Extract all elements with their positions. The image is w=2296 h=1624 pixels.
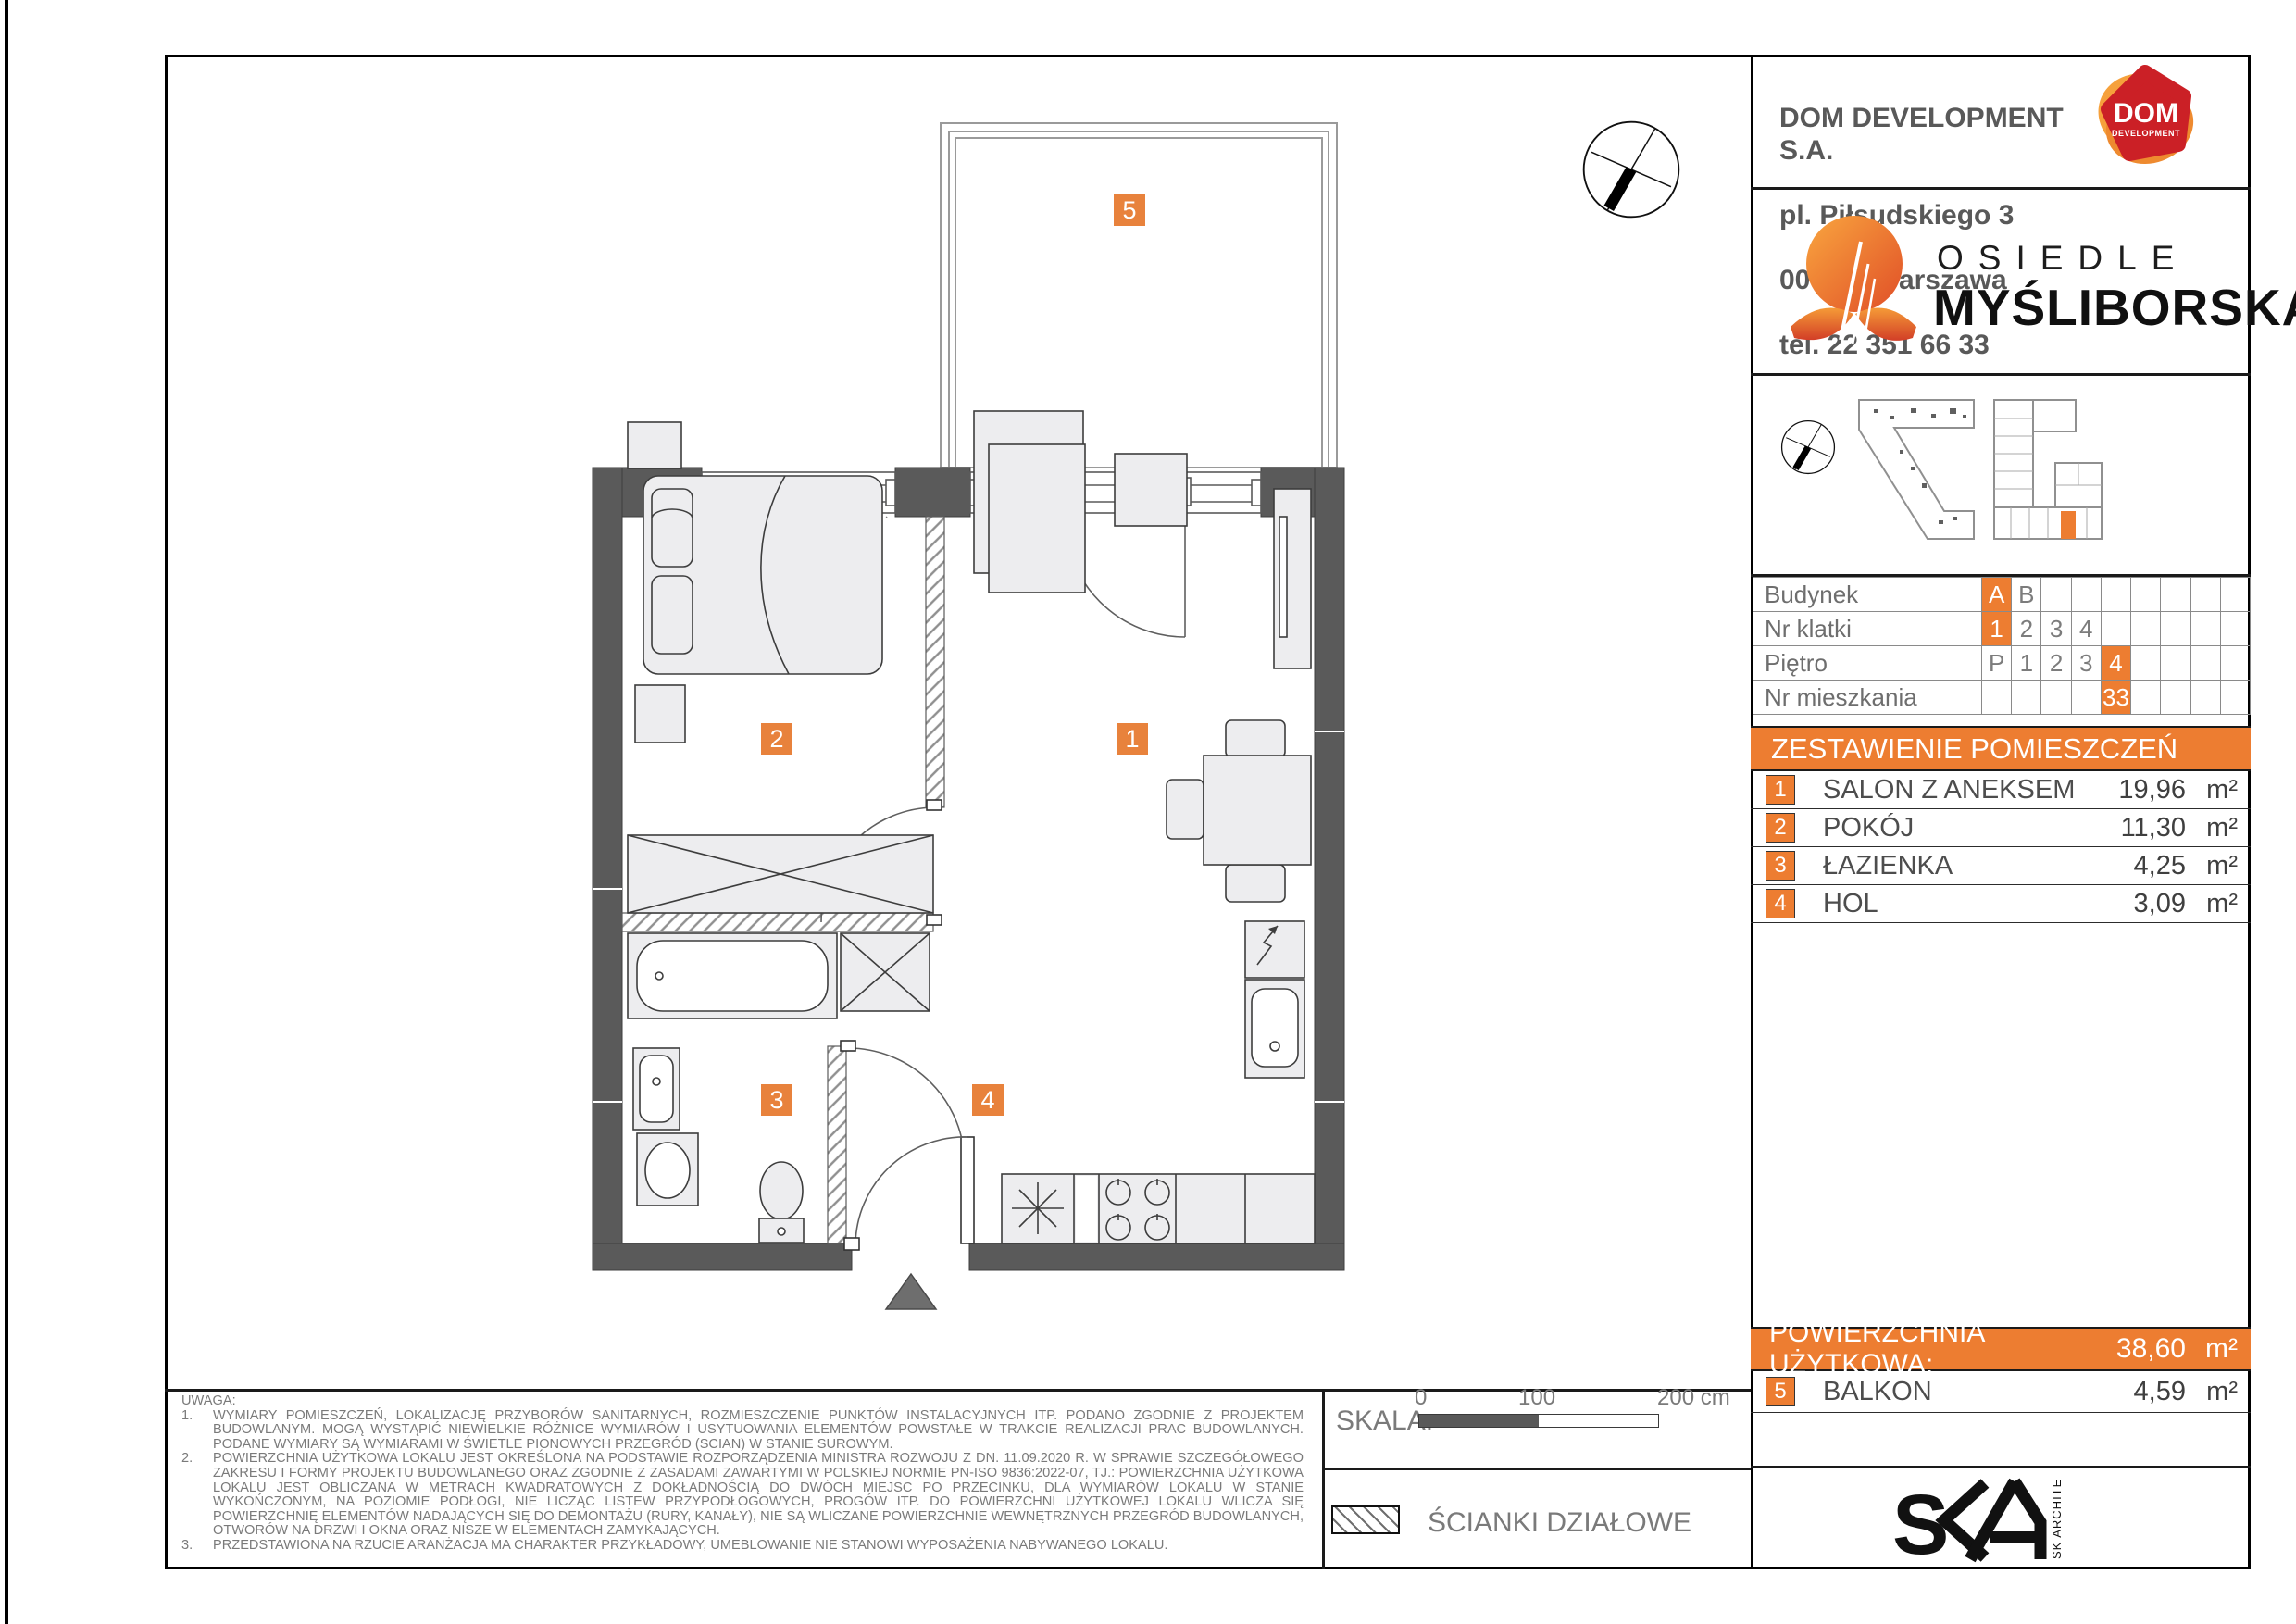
info-table-row-label: Budynek (1753, 578, 1982, 612)
rooms-rows: 1SALON Z ANEKSEM19,96m²2POKÓJ11,30m²3ŁAZ… (1751, 771, 2251, 923)
dining-set (1167, 720, 1311, 902)
room-label-lazienka: 3 (761, 1084, 792, 1116)
section-rule-2 (1751, 373, 2251, 376)
north-arrow-icon (1579, 118, 1683, 221)
page-edge-rule (5, 0, 8, 1624)
room-label-hol: 4 (972, 1084, 1004, 1116)
info-table-cell: P (1982, 646, 2012, 681)
info-table-cell (2221, 646, 2251, 681)
info-table-row-label: Nr mieszkania (1753, 681, 1982, 715)
entrance-arrow-icon (886, 1274, 936, 1309)
info-table-cell: 33 (2102, 681, 2131, 715)
scale-tick-100: 100 (1518, 1385, 1555, 1411)
info-table-cell (2221, 578, 2251, 612)
sofa (974, 411, 1085, 593)
info-table-cell (2072, 578, 2102, 612)
info-table-cell (2161, 578, 2190, 612)
section-rule-1 (1751, 187, 2251, 190)
rooms-header-label: ZESTAWIENIE POMIESZCZEŃ (1771, 732, 2177, 766)
washbasin (633, 1048, 680, 1130)
svg-text:DOM: DOM (2114, 98, 2178, 129)
washer-box (841, 933, 930, 1011)
note-item: 3.PRZEDSTAWIONA NA RZUCIE ARANŻACJA MA C… (181, 1539, 1304, 1554)
info-table-cell (2131, 681, 2161, 715)
bathroom-door (841, 1041, 965, 1165)
note-number: 3. (181, 1539, 213, 1554)
kitchen-sink (1245, 980, 1304, 1078)
notes-block: UWAGA: 1.WYMIARY POMIESZCZEŃ, LOKALIZACJ… (181, 1394, 1304, 1554)
partition-legend-label: ŚCIANKI DZIAŁOWE (1428, 1507, 1691, 1539)
room-row: 4HOL3,09m² (1751, 885, 2251, 923)
room-area: 3,09 (2093, 889, 2186, 919)
scale-tick-0: 0 (1415, 1385, 1427, 1411)
info-table-cell (1982, 681, 2012, 715)
info-table-cell: 4 (2102, 646, 2131, 681)
room-name: SALON Z ANEKSEM (1823, 775, 2093, 806)
ska-architekci-logo: S SK ARCHITEKCI (1892, 1478, 2068, 1563)
info-table-cell (2131, 612, 2161, 646)
floor-plan-sheet: 5 2 1 3 4 DOM DEVELOPMENT S.A. pl. Piłsu… (0, 0, 2296, 1624)
room-unit: m² (2186, 775, 2238, 806)
section-rule-4 (1751, 1466, 2251, 1468)
osiedle-logo-icon (1776, 208, 1929, 356)
info-table-cell (2191, 681, 2221, 715)
room-row: 2POKÓJ11,30m² (1751, 809, 2251, 847)
room-label-balkon: 5 (1114, 194, 1145, 226)
info-table-cell: 2 (2012, 612, 2041, 646)
info-table-cell (2012, 681, 2041, 715)
armchair (1115, 454, 1187, 526)
info-table-cell (2161, 612, 2190, 646)
site-plan-unit-highlight (2061, 511, 2076, 539)
developer-name: DOM DEVELOPMENT S.A. (1779, 102, 2085, 167)
electrical-box (1245, 921, 1304, 978)
scale-bar-filled (1419, 1415, 1539, 1427)
info-table-cell (2072, 681, 2102, 715)
entrance-door (844, 1137, 974, 1250)
info-table-cell: 2 (2041, 646, 2071, 681)
info-table-cell (2191, 612, 2221, 646)
note-text: PRZEDSTAWIONA NA RZUCIE ARANŻACJA MA CHA… (213, 1539, 1304, 1554)
info-table-cell (2041, 578, 2071, 612)
washing-machine (637, 1133, 698, 1206)
notes-list: 1.WYMIARY POMIESZCZEŃ, LOKALIZACJĘ PRZYB… (181, 1409, 1304, 1554)
sink-symbol (1012, 1182, 1064, 1234)
balcony-number-badge: 5 (1766, 1377, 1795, 1406)
room-unit: m² (2186, 889, 2238, 919)
svg-text:DEVELOPMENT: DEVELOPMENT (2112, 129, 2180, 138)
notes-title: UWAGA: (181, 1394, 1304, 1409)
room-area: 11,30 (2093, 813, 2186, 843)
info-table-cell (2191, 578, 2221, 612)
scale-tick-200: 200 cm (1657, 1385, 1730, 1411)
info-table-cell: 1 (2012, 646, 2041, 681)
floor-plan-drawing (555, 83, 1370, 1389)
info-table-cell: 4 (2072, 612, 2102, 646)
info-table-cell (2102, 612, 2131, 646)
room-area: 19,96 (2093, 775, 2186, 806)
bathtub (628, 933, 837, 1018)
info-table-cell: 3 (2072, 646, 2102, 681)
rooms-header-bar: ZESTAWIENIE POMIESZCZEŃ (1751, 726, 2251, 771)
room-label-salon: 1 (1117, 723, 1148, 755)
room-row: 3ŁAZIENKA4,25m² (1751, 847, 2251, 885)
room-name: ŁAZIENKA (1823, 851, 2093, 881)
info-table: BudynekABNr klatki1234PiętroP1234Nr mies… (1753, 577, 2251, 715)
info-table-cell (2221, 681, 2251, 715)
info-table-cell: 3 (2041, 612, 2071, 646)
ska-vertical-text: SK ARCHITEKCI (2050, 1478, 2064, 1559)
scale-bar (1418, 1414, 1659, 1428)
partition-legend-swatch (1331, 1505, 1400, 1534)
info-table-row-label: Nr klatki (1753, 612, 1982, 646)
info-table-cell (2041, 681, 2071, 715)
toilet (759, 1162, 804, 1243)
note-text: POWIERZCHNIA UŻYTKOWA LOKALU JEST OKREŚL… (213, 1452, 1304, 1539)
note-item: 1.WYMIARY POMIESZCZEŃ, LOKALIZACJĘ PRZYB… (181, 1409, 1304, 1453)
summary-value: 38,60 (2093, 1333, 2186, 1365)
scale-column-divider (1322, 1389, 1325, 1569)
room-name: HOL (1823, 889, 2093, 919)
room-area: 4,25 (2093, 851, 2186, 881)
room-unit: m² (2186, 813, 2238, 843)
info-table-cell (2131, 646, 2161, 681)
info-table-cell: 1 (1982, 612, 2012, 646)
project-name: MYŚLIBORSKA (1933, 278, 2296, 337)
room-number-badge: 3 (1766, 851, 1795, 881)
info-table-cell (2161, 681, 2190, 715)
legend-row-divider (1322, 1468, 1751, 1470)
info-table-cell: A (1982, 578, 2012, 612)
balcony-row: 5 BALKON 4,59 m² (1751, 1371, 2251, 1413)
summary-unit: m² (2186, 1333, 2238, 1365)
balcony-unit: m² (2186, 1377, 2238, 1407)
note-item: 2.POWIERZCHNIA UŻYTKOWA LOKALU JEST OKRE… (181, 1452, 1304, 1539)
room-label-pokoj: 2 (761, 723, 792, 755)
balcony-name: BALKON (1823, 1377, 2093, 1407)
room-name: POKÓJ (1823, 813, 2093, 843)
note-text: WYMIARY POMIESZCZEŃ, LOKALIZACJĘ PRZYBOR… (213, 1409, 1304, 1453)
room-row: 1SALON Z ANEKSEM19,96m² (1751, 771, 2251, 809)
info-table-cell (2191, 646, 2221, 681)
dom-development-logo: DOM DEVELOPMENT (2094, 63, 2198, 178)
note-number: 2. (181, 1452, 213, 1539)
site-plan-minimap (1853, 393, 2105, 556)
tv-cabinet (1274, 489, 1311, 668)
info-table-cell (2161, 646, 2190, 681)
wardrobe (628, 835, 933, 913)
north-arrow-small-icon (1779, 418, 1837, 476)
bottom-strip-rule (165, 1389, 1751, 1392)
info-table-cell: B (2012, 578, 2041, 612)
room-number-badge: 2 (1766, 813, 1795, 843)
room-number-badge: 1 (1766, 775, 1795, 805)
info-table-cell (2102, 578, 2131, 612)
room-number-badge: 4 (1766, 889, 1795, 918)
balcony-area: 4,59 (2093, 1377, 2186, 1407)
note-number: 1. (181, 1409, 213, 1453)
project-prefix: OSIEDLE (1937, 239, 2189, 278)
room-unit: m² (2186, 851, 2238, 881)
summary-bar: POWIERZCHNIA UŻYTKOWA: 38,60 m² (1751, 1327, 2251, 1371)
info-table-cell (2221, 612, 2251, 646)
info-table-cell (2131, 578, 2161, 612)
info-table-row-label: Piętro (1753, 646, 1982, 681)
